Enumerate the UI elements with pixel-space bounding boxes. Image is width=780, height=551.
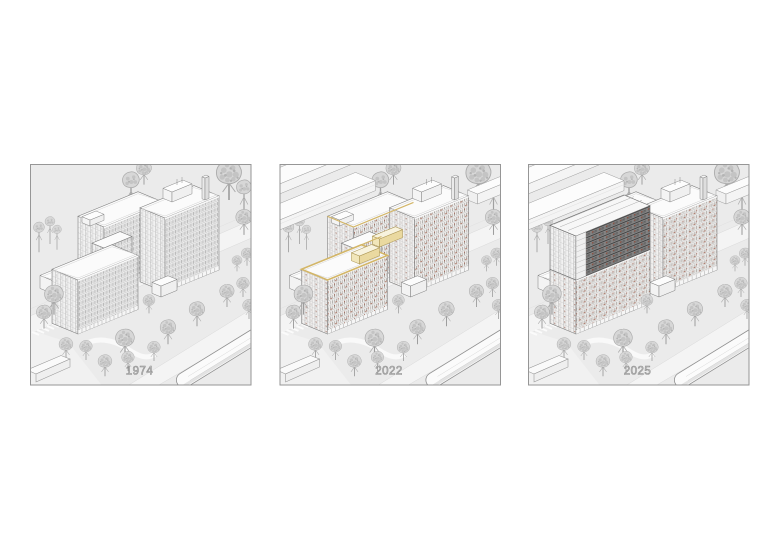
svg-text:2025: 2025: [624, 366, 652, 378]
svg-text:1974: 1974: [126, 366, 154, 378]
svg-text:2022: 2022: [375, 366, 403, 378]
